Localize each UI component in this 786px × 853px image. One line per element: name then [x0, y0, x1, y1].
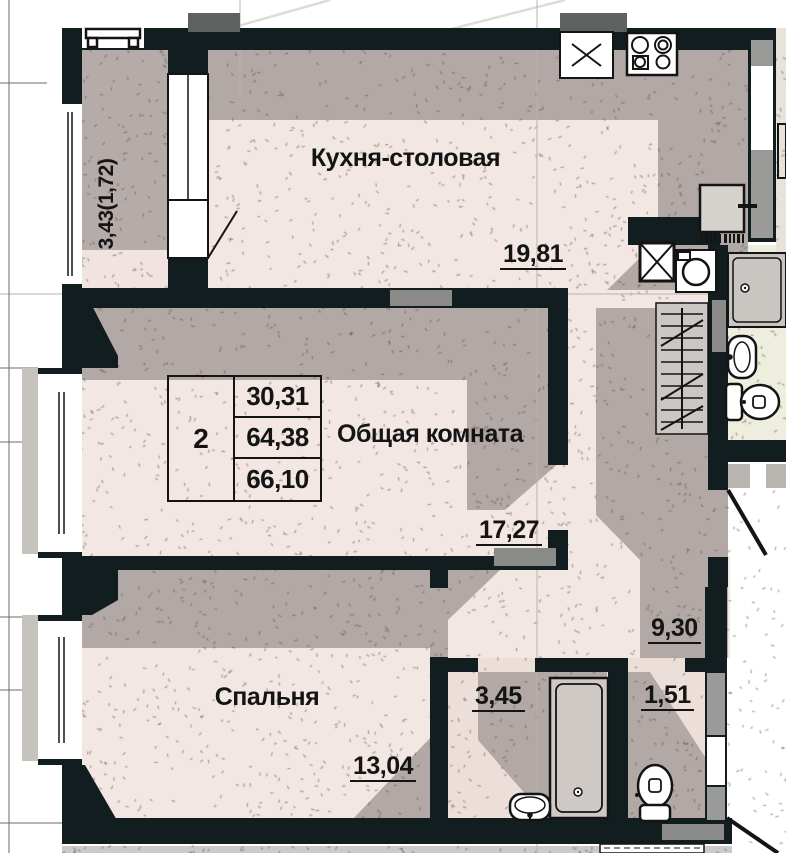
hall-area-value: 9,30 [648, 614, 701, 644]
bathroom-area-value: 3,45 [472, 682, 525, 712]
kitchen-area-value: 19,81 [500, 240, 566, 270]
neighbor-washbasin-icon [727, 336, 756, 378]
stove-icon [627, 33, 677, 75]
balcony-area-value: 3,43(1,72) [95, 159, 118, 250]
balcony-door-swing [208, 211, 237, 258]
washbasin-icon [510, 794, 550, 821]
living-area-value: 17,27 [476, 516, 542, 546]
bathroom-area: 3,45 [472, 682, 525, 711]
kitchen-area: 19,81 [500, 240, 566, 269]
living-label: Общая комната [330, 420, 530, 449]
ac-bracket-icon [82, 28, 144, 48]
washing-machine-icon [676, 250, 716, 292]
left-windows [22, 104, 82, 761]
toilet-area: 1,51 [641, 681, 694, 710]
apartment-area: 64,38 [235, 418, 320, 459]
neighbor-room-window [778, 124, 786, 178]
toilet-area-value: 1,51 [641, 681, 694, 711]
neighbor-counter [600, 844, 704, 853]
fridge-vent [701, 234, 744, 243]
neighbor-door-swing [727, 818, 778, 853]
neighbor-bathtub-icon [728, 253, 786, 327]
kitchen-sink-icon [560, 32, 613, 78]
wardrobe-icon [656, 303, 708, 434]
neighbor-toilet-icon [726, 384, 779, 420]
living-area-total: 30,31 [235, 377, 320, 418]
bedroom-area-value: 13,04 [350, 752, 416, 782]
balcony-door-window [168, 74, 237, 258]
bathtub-icon [550, 678, 608, 818]
total-area: 66,10 [235, 459, 320, 500]
rooms-count: 2 [169, 377, 235, 500]
door-swings [727, 490, 778, 853]
toilet-icon [635, 765, 672, 821]
entry-door-swing [728, 490, 766, 555]
living-area: 17,27 [476, 516, 542, 545]
hall-area: 9,30 [648, 614, 701, 643]
bedroom-label: Спальня [212, 683, 322, 712]
balcony-area: 3,43(1,72) [95, 141, 119, 267]
floor-plan: Кухня-столовая 19,81 Общая комната 17,27… [0, 0, 786, 853]
apartment-info-table: 2 30,31 64,38 66,10 [167, 375, 322, 502]
bedroom-area: 13,04 [350, 752, 416, 781]
kitchen-label: Кухня-столовая [278, 144, 533, 173]
vent-shaft-icon [640, 243, 674, 281]
